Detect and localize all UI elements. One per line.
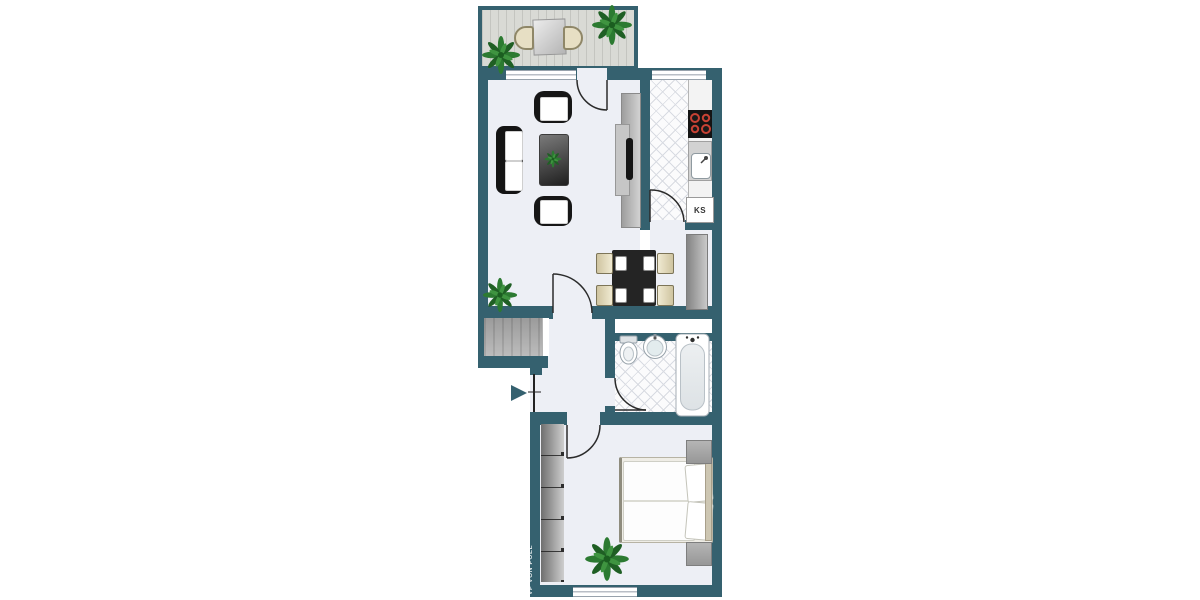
balcony-doorway bbox=[577, 68, 607, 80]
coffee-table bbox=[539, 134, 569, 186]
entrance-doorway bbox=[530, 375, 542, 412]
kitchen-window bbox=[652, 70, 706, 80]
entrance-arrow-icon bbox=[511, 385, 527, 401]
wall-right bbox=[712, 68, 722, 597]
hall-wardrobe-open-side bbox=[542, 318, 549, 356]
armchair-top-seat bbox=[540, 97, 568, 121]
kitchen-separator-wall bbox=[640, 80, 650, 230]
plate bbox=[643, 256, 655, 271]
sofa-cushion-bottom bbox=[505, 161, 523, 191]
bathroom-floor-tiles bbox=[615, 341, 712, 413]
bedroom-wardrobe-ticks bbox=[561, 424, 564, 582]
dining-chair bbox=[657, 253, 674, 274]
bathroom-left-wall bbox=[605, 319, 615, 378]
dining-chair bbox=[596, 285, 613, 306]
bathroom-top-wall bbox=[615, 333, 712, 341]
floor-plan: KS VP VON POLL bbox=[0, 0, 1200, 600]
sofa-cushion-top bbox=[505, 131, 523, 161]
hall-doorway bbox=[553, 306, 592, 319]
kitchen-doorway bbox=[650, 220, 685, 230]
hall-wardrobe bbox=[484, 318, 542, 356]
dining-sideboard bbox=[686, 234, 708, 310]
stove bbox=[688, 110, 712, 138]
bathroom-doorway bbox=[605, 378, 615, 406]
plate bbox=[615, 288, 627, 303]
hallway-floor bbox=[542, 319, 605, 412]
kitchen-sink bbox=[691, 153, 711, 179]
bathroom-left-stub bbox=[605, 405, 615, 415]
tv bbox=[626, 138, 633, 180]
plate bbox=[615, 256, 627, 271]
nightstand-top bbox=[686, 440, 712, 464]
bedroom-top-wall-right bbox=[600, 412, 722, 425]
plate bbox=[643, 288, 655, 303]
nightstand-bottom bbox=[686, 542, 712, 566]
kitchen-floor-tiles bbox=[650, 80, 688, 220]
dining-chair bbox=[657, 285, 674, 306]
wall-left bbox=[478, 68, 488, 318]
armchair-bottom-seat bbox=[540, 200, 568, 224]
fridge-label: KS bbox=[694, 206, 706, 215]
bed-headboard bbox=[705, 459, 712, 541]
balcony-chair-left bbox=[514, 26, 534, 50]
fridge: KS bbox=[686, 197, 714, 223]
brand-watermark: VP VON POLL bbox=[527, 537, 534, 595]
living-room-window bbox=[506, 70, 576, 80]
shaft-void bbox=[615, 319, 712, 333]
bedroom-doorway bbox=[567, 412, 600, 425]
balcony-table bbox=[532, 18, 566, 55]
hall-left-stub-top bbox=[530, 362, 542, 375]
bedroom-window bbox=[573, 587, 637, 597]
dining-chair bbox=[596, 253, 613, 274]
